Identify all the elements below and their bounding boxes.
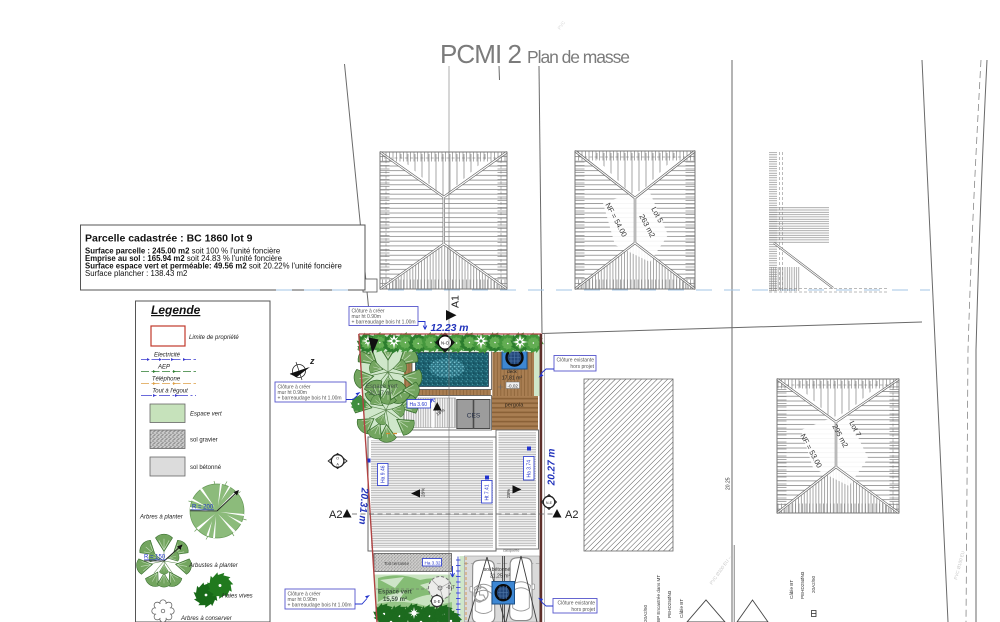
svg-text:Téléphone: Téléphone [152, 377, 181, 383]
svg-text:Espace vert: Espace vert [378, 590, 412, 596]
svg-text:Plan de masse: Plan de masse [527, 47, 630, 67]
svg-text:Parcelle cadastrée : BC 1860 l: Parcelle cadastrée : BC 1860 lot 9 [85, 233, 253, 245]
svg-text:Arbres à planter: Arbres à planter [139, 515, 184, 521]
svg-text:hors projet: hors projet [570, 364, 594, 370]
svg-text:A1: A1 [450, 295, 462, 308]
svg-text:Clôture existante: Clôture existante [557, 601, 595, 607]
svg-text:Ha 9.46: Ha 9.46 [381, 465, 387, 483]
svg-text:S-E: S-E [434, 599, 441, 604]
svg-text:20A2/50: 20A2/50 [643, 604, 648, 622]
svg-text:Ha 3.74: Ha 3.74 [527, 460, 533, 478]
svg-text:Toit terrasse: Toit terrasse [384, 561, 409, 566]
svg-text:Arbres à conserver: Arbres à conserver [180, 616, 233, 622]
svg-text:Espace vert: Espace vert [190, 412, 222, 418]
svg-text:17,81 m²: 17,81 m² [502, 376, 523, 382]
svg-text:sol gravier: sol gravier [190, 438, 218, 444]
svg-text:deck: deck [507, 369, 517, 374]
svg-text:Ht 7.41: Ht 7.41 [485, 484, 491, 500]
svg-text:O: O [336, 457, 339, 461]
svg-text:Ha 3.60: Ha 3.60 [410, 402, 428, 408]
svg-text:Haies vives: Haies vives [222, 594, 253, 600]
svg-text:AEP: AEP [157, 365, 170, 371]
svg-text:20,17 m²: 20,17 m² [369, 391, 393, 397]
svg-text:Arbustes à planter: Arbustes à planter [188, 563, 239, 569]
svg-text:A2: A2 [329, 509, 342, 521]
svg-text:Limite de propriété: Limite de propriété [189, 335, 239, 341]
svg-text:Câble BT: Câble BT [679, 599, 684, 618]
svg-text:pergola: pergola [505, 403, 525, 409]
svg-text:Tout à l'égout: Tout à l'égout [152, 389, 188, 395]
svg-text:28%: 28% [506, 489, 511, 498]
svg-text:+ barreaudage bois ht 1.00m: + barreaudage bois ht 1.00m [352, 320, 416, 326]
svg-text:20A2/50: 20A2/50 [811, 575, 816, 593]
svg-text:Espace vert: Espace vert [366, 384, 398, 390]
svg-text:PEHD25ØN3: PEHD25ØN3 [800, 571, 805, 599]
svg-text:Câble BT: Câble BT [789, 580, 794, 599]
svg-text:Surface plancher : 138.43 m2: Surface plancher : 138.43 m2 [85, 269, 187, 278]
svg-text:N-O: N-O [441, 341, 450, 346]
svg-text:Clôture existante: Clôture existante [556, 358, 594, 364]
svg-text:casquette: casquette [503, 549, 519, 553]
svg-text:-0,02: -0,02 [507, 383, 518, 388]
svg-text:PCMI 2: PCMI 2 [440, 39, 522, 69]
svg-text:31,25 m²: 31,25 m² [490, 574, 511, 580]
svg-text:20.27 m: 20.27 m [547, 449, 558, 487]
svg-text:Ha 3.32: Ha 3.32 [425, 560, 442, 565]
svg-text:sol bétonné: sol bétonné [190, 465, 222, 471]
svg-text:BP Encastrée dans MT: BP Encastrée dans MT [656, 575, 661, 622]
svg-text:CES: CES [467, 413, 481, 420]
svg-text:Electricité: Electricité [154, 353, 181, 359]
svg-text:N-E: N-E [546, 501, 553, 505]
svg-text:12.23 m: 12.23 m [431, 322, 469, 334]
svg-text:+ barreaudage bois ht 1.00m: + barreaudage bois ht 1.00m [278, 396, 342, 402]
svg-text:Legende: Legende [151, 303, 201, 317]
svg-text:sol bétonné: sol bétonné [484, 567, 511, 573]
svg-text:PEHD25ØN3: PEHD25ØN3 [667, 590, 672, 618]
svg-text:+ barreaudage bois ht 1.00m: + barreaudage bois ht 1.00m [288, 603, 352, 609]
svg-text:A2: A2 [565, 509, 578, 521]
svg-text:z: z [309, 356, 315, 366]
svg-text:20.25: 20.25 [726, 477, 732, 490]
svg-text:hors projet: hors projet [571, 607, 595, 613]
svg-text:15,59 m²: 15,59 m² [383, 596, 407, 603]
svg-text:-0,7: -0,7 [446, 585, 455, 591]
svg-text:28%: 28% [421, 488, 426, 497]
